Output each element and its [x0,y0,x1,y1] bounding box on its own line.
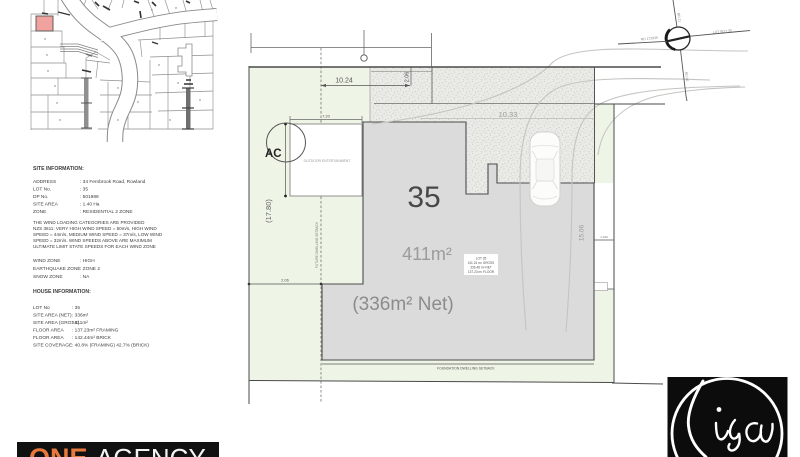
svg-text:HOUSE INFORMATION:: HOUSE INFORMATION: [33,289,91,295]
svg-text:411.24 m² GROSS: 411.24 m² GROSS [468,261,495,265]
svg-text:THE WIND LOADING CATEGORIES AR: THE WIND LOADING CATEGORIES ARE PROVIDED [33,220,145,225]
svg-text:: 35: : 35 [72,305,80,311]
svg-text:: 142.44m² BRICK: : 142.44m² BRICK [72,335,112,341]
svg-text:AC: AC [265,148,282,160]
svg-text:: 411m²: : 411m² [72,320,88,326]
svg-text:SITE AREA (NET): SITE AREA (NET) [33,313,72,319]
svg-text:2.06: 2.06 [281,278,290,283]
svg-text:: RESIDENTIAL 2 ZONE: : RESIDENTIAL 2 ZONE [80,209,133,215]
svg-text:ADDRESS: ADDRESS [33,179,56,185]
svg-text:137.23 m² FLOOR: 137.23 m² FLOOR [468,270,495,274]
svg-text:: HIGH: : HIGH [80,258,95,264]
svg-text:NZS 3611: VERY HIGH WIND SPEED: NZS 3611: VERY HIGH WIND SPEED = 50m/s, … [33,226,157,231]
svg-text:ZONE: ZONE [33,209,46,215]
svg-text:EARTHQUAKE ZONE: EARTHQUAKE ZONE [33,266,81,272]
svg-text:SPEED = 44m/s, MEDIUM WIND SPE: SPEED = 44m/s, MEDIUM WIND SPEED = 37m/s… [33,232,163,237]
svg-text:LOT No: LOT No [33,305,50,311]
svg-text:2.06: 2.06 [405,72,411,83]
svg-text:LOT 35: LOT 35 [476,257,487,261]
svg-text:OUTDOOR ENTERTAINMENT: OUTDOOR ENTERTAINMENT [304,159,351,163]
svg-text:: NA: : NA [80,274,90,280]
svg-text:DP No.: DP No. [33,194,48,200]
svg-text:FUTURE DWELLING SETBACK: FUTURE DWELLING SETBACK [315,221,319,268]
svg-text:35: 35 [407,181,440,214]
svg-text:: ZONE 2: : ZONE 2 [80,266,100,272]
svg-text:10.24: 10.24 [335,78,353,85]
svg-text:7.20: 7.20 [322,114,331,119]
svg-text:: 35: : 35 [80,187,88,193]
svg-text:: 336m²: : 336m² [72,313,89,319]
svg-text:(336m² Net): (336m² Net) [352,294,453,315]
svg-text:336.48 m² NET: 336.48 m² NET [470,266,492,270]
svg-text:: 1.40 Ha: : 1.40 Ha [80,202,100,208]
svg-text:SNOW ZONE: SNOW ZONE [33,274,63,280]
svg-text:SITE AREA: SITE AREA [33,202,59,208]
svg-text:15.06: 15.06 [579,224,586,241]
svg-text:FLOOR AREA: FLOOR AREA [33,335,64,341]
svg-text:AGENCY: AGENCY [96,443,206,457]
svg-text:ONE: ONE [29,443,88,457]
svg-text:FLOOR AREA: FLOOR AREA [33,328,64,334]
svg-text:(17.80): (17.80) [264,199,273,223]
svg-text:: 34 Fernbrook Road, Rowland: : 34 Fernbrook Road, Rowland [80,179,146,185]
svg-text:1.049: 1.049 [600,235,608,239]
svg-text:411m²: 411m² [402,244,452,264]
svg-text:: 501988: : 501988 [80,194,99,200]
svg-text:SITE COVERAGE: SITE COVERAGE [33,343,72,349]
svg-text:: 137.23m² FRAMING: : 137.23m² FRAMING [72,328,119,334]
svg-text:SPEED = 32m/s. WIND SPEEDS ABO: SPEED = 32m/s. WIND SPEEDS ABOVE ARE MAX… [33,238,152,243]
svg-text:FOUNDATION DWELLING SETBACK: FOUNDATION DWELLING SETBACK [437,367,495,371]
svg-text:LOT No.: LOT No. [33,187,51,193]
svg-text:: 40.8% (FRAMING) 42.7% (BRI: : 40.8% (FRAMING) 42.7% (BRICK) [72,343,149,349]
svg-text:SITE INFORMATION:: SITE INFORMATION: [33,166,84,172]
svg-text:10.33: 10.33 [499,110,518,119]
svg-text:ULTIMATE LIMIT STATE SPEEDS FO: ULTIMATE LIMIT STATE SPEEDS FOR EACH WIN… [33,244,156,249]
svg-text:WIND ZONE: WIND ZONE [33,258,60,264]
